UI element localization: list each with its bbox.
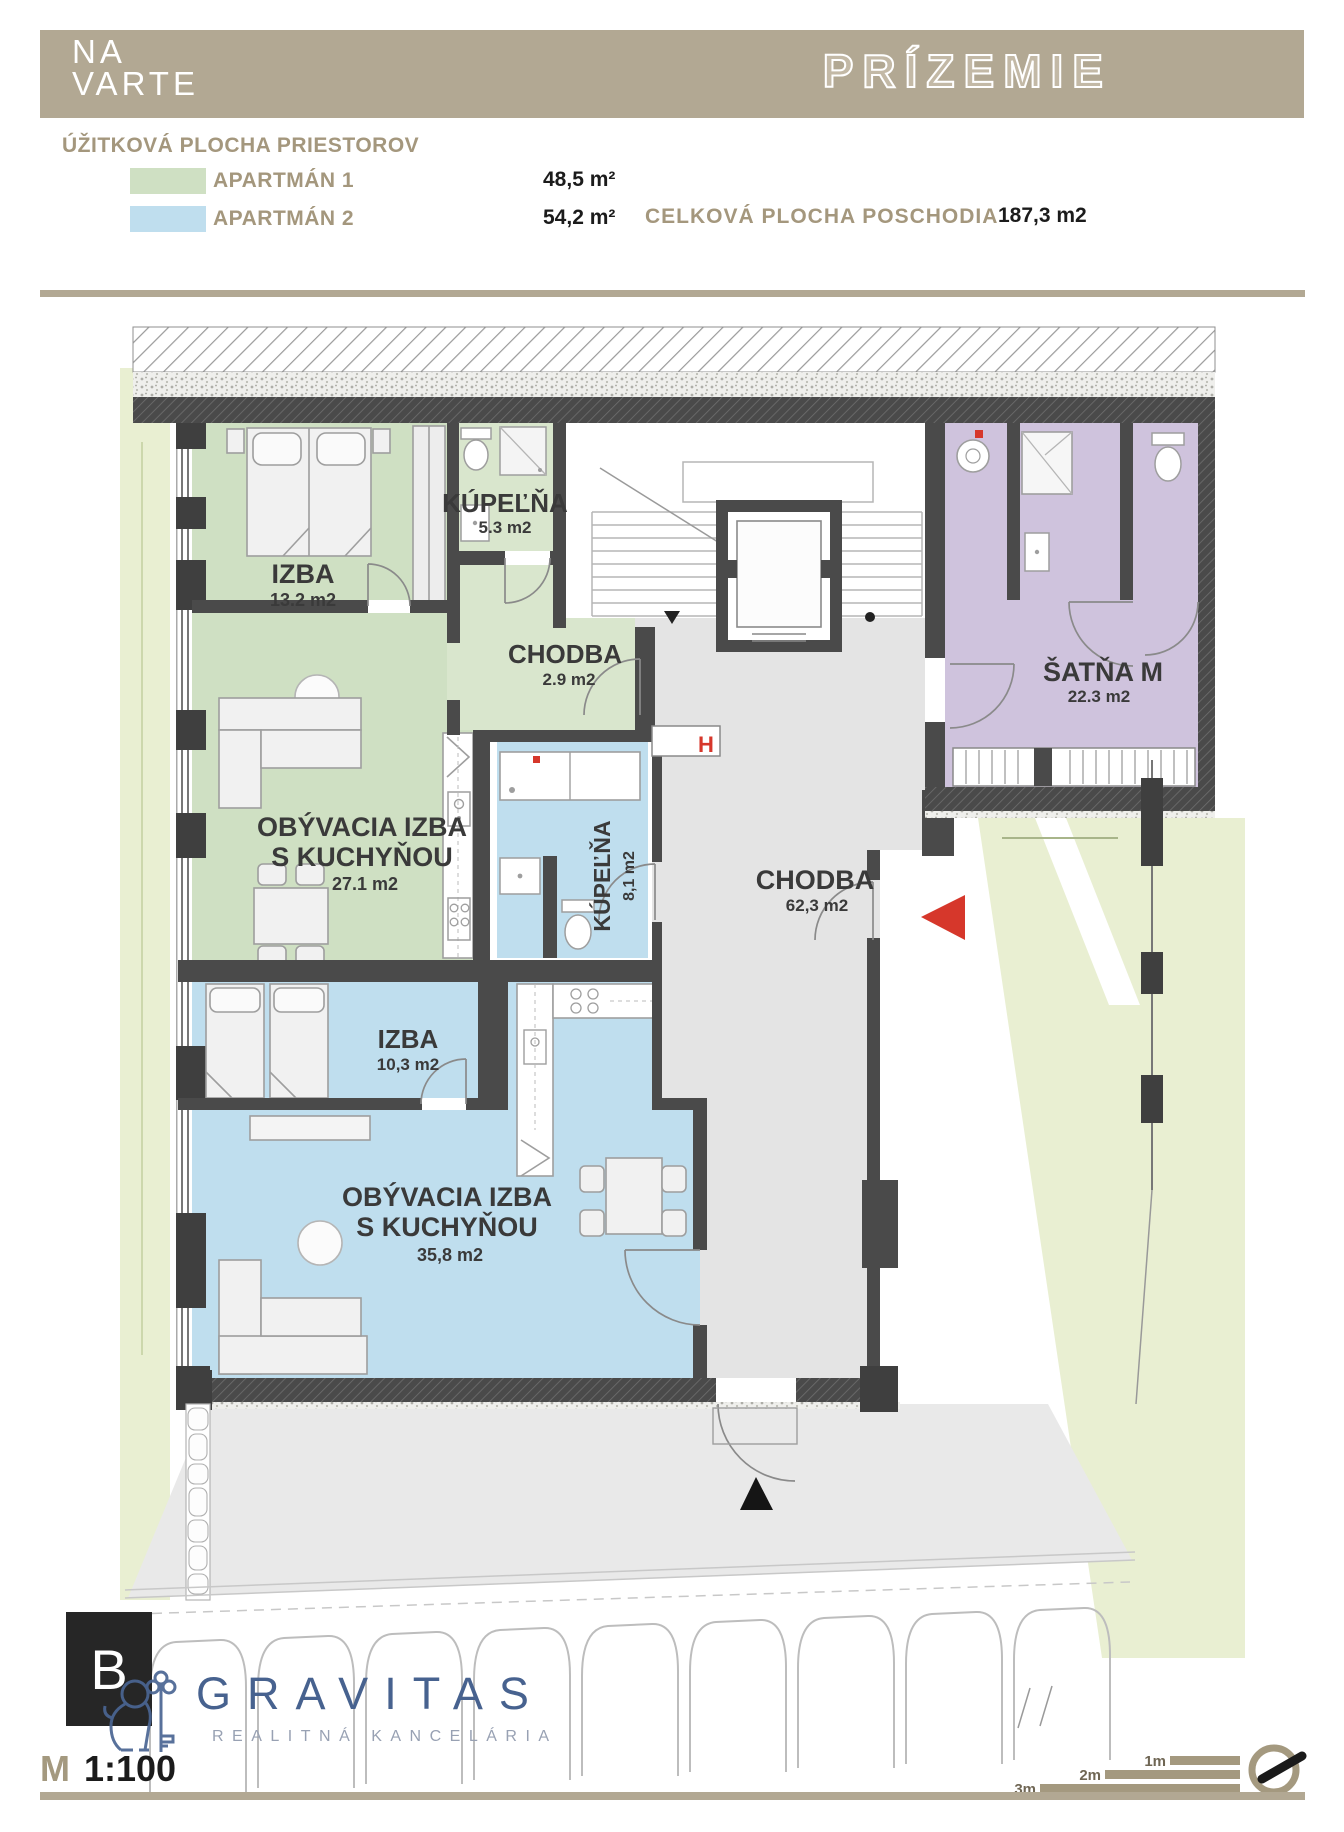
label-chodba1: CHODBA — [508, 639, 622, 669]
roof-wall-band — [133, 327, 1215, 423]
scale-1m: 1m — [1144, 1753, 1166, 1770]
scale-bar: 3m 2m 1m — [1014, 1753, 1240, 1798]
label-kupelna1-area: 5.3 m2 — [479, 518, 532, 537]
page-title: PRÍZEMIE — [823, 44, 1112, 98]
legend-value-apartment2: 54,2 m² — [543, 206, 615, 230]
legend-title: ÚŽITKOVÁ PLOCHA PRIESTOROV — [62, 134, 419, 158]
terrace-area — [128, 1404, 1132, 1598]
floor-plan-drawing: H IZBA 13.2 m2 KÚPEĽŇA 5.3 m2 CHODBA 2.9… — [0, 0, 1344, 1832]
brand-line2: VARTE — [72, 68, 199, 100]
label-obyv2-area: 35,8 m2 — [417, 1245, 483, 1265]
header-band — [40, 30, 1304, 118]
label-izba1: IZBA — [272, 559, 335, 589]
drawing-scale: M1:100 — [40, 1748, 176, 1790]
legend-divider-line — [40, 290, 1305, 297]
legend-total-label: CELKOVÁ PLOCHA POSCHODIA — [645, 205, 998, 229]
legend-value-apartment1: 48,5 m² — [543, 168, 615, 192]
label-obyv1-l1: OBÝVACIA IZBA — [257, 811, 467, 842]
red-mark-2 — [975, 430, 983, 438]
label-kupelna2-area: 8,1 m2 — [621, 851, 638, 901]
compass-icon — [1252, 1748, 1302, 1792]
label-obyv1-l2: S KUCHYŇOU — [271, 841, 453, 872]
hydrant-label: H — [698, 732, 714, 757]
legend-label-apartment1: APARTMÁN 1 — [213, 169, 354, 193]
label-kupelna1: KÚPEĽŇA — [442, 488, 568, 518]
brand-logo: NA VARTE — [72, 36, 199, 101]
stone-wall — [186, 1404, 210, 1600]
legend-label-apartment2: APARTMÁN 2 — [213, 207, 354, 231]
legend-total-value: 187,3 m2 — [998, 204, 1087, 228]
garden-strip-left — [120, 368, 170, 1600]
label-obyv2-l2: S KUCHYŇOU — [356, 1211, 538, 1242]
floorplan-page: H IZBA 13.2 m2 KÚPEĽŇA 5.3 m2 CHODBA 2.9… — [0, 0, 1344, 1832]
scale-prefix: M — [40, 1748, 70, 1789]
label-obyv1-area: 27.1 m2 — [332, 874, 398, 894]
label-izba2-area: 10,3 m2 — [377, 1055, 439, 1074]
label-chodba2: CHODBA — [756, 865, 875, 895]
label-izba2: IZBA — [378, 1024, 439, 1054]
red-mark-1 — [533, 756, 540, 763]
entrance-arrow-red — [921, 895, 965, 940]
legend-swatch-apartment2 — [130, 206, 206, 232]
brand-line1: NA — [72, 36, 199, 68]
elevator — [716, 500, 842, 652]
gravitas-wordmark: GRAVITAS — [196, 1668, 545, 1720]
footer-divider-line — [40, 1792, 1305, 1800]
label-izba1-area: 13.2 m2 — [270, 590, 336, 610]
scale-2m: 2m — [1079, 1767, 1101, 1784]
label-chodba1-area: 2.9 m2 — [543, 670, 596, 689]
legend-swatch-apartment1 — [130, 168, 206, 194]
label-kupelna2: KÚPEĽŇA — [588, 820, 615, 931]
label-satna: ŠATŇA M — [1043, 656, 1163, 687]
scale-value: 1:100 — [84, 1748, 176, 1789]
label-obyv2-l1: OBÝVACIA IZBA — [342, 1181, 552, 1212]
label-chodba2-area: 62,3 m2 — [786, 896, 848, 915]
gravitas-subtitle: REALITNÁ KANCELÁRIA — [212, 1728, 558, 1746]
label-satna-area: 22.3 m2 — [1068, 687, 1130, 706]
